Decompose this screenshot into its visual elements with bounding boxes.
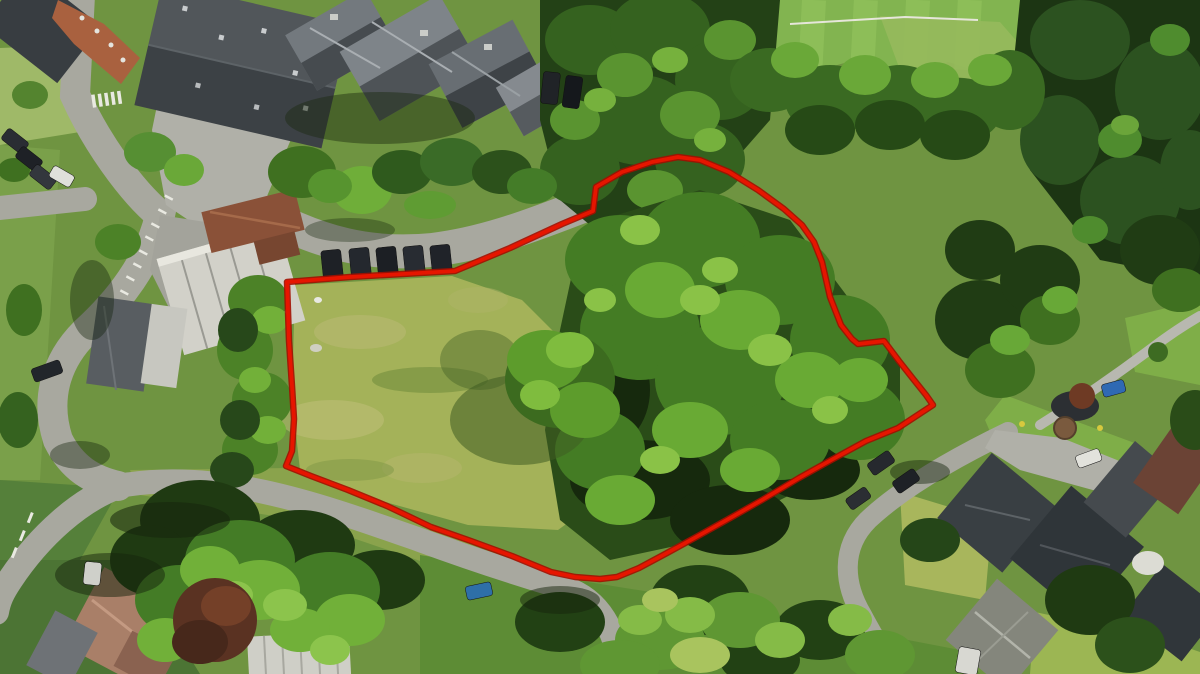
- garden-bush: [1148, 342, 1168, 362]
- white-van: [955, 646, 981, 674]
- greenhouse: [1132, 551, 1164, 575]
- aerial-photo: [0, 0, 1200, 674]
- small-white-object: [314, 297, 322, 303]
- car: [321, 249, 344, 279]
- garden-circle: [1054, 417, 1076, 439]
- small-light-object: [310, 344, 322, 352]
- car: [540, 71, 560, 105]
- chimney: [330, 14, 338, 20]
- white-camper: [83, 561, 102, 586]
- car: [349, 247, 372, 277]
- gazebo-dome: [1069, 383, 1095, 409]
- chimney: [420, 30, 428, 36]
- west-road-stub: [0, 199, 85, 208]
- chimney: [484, 44, 492, 50]
